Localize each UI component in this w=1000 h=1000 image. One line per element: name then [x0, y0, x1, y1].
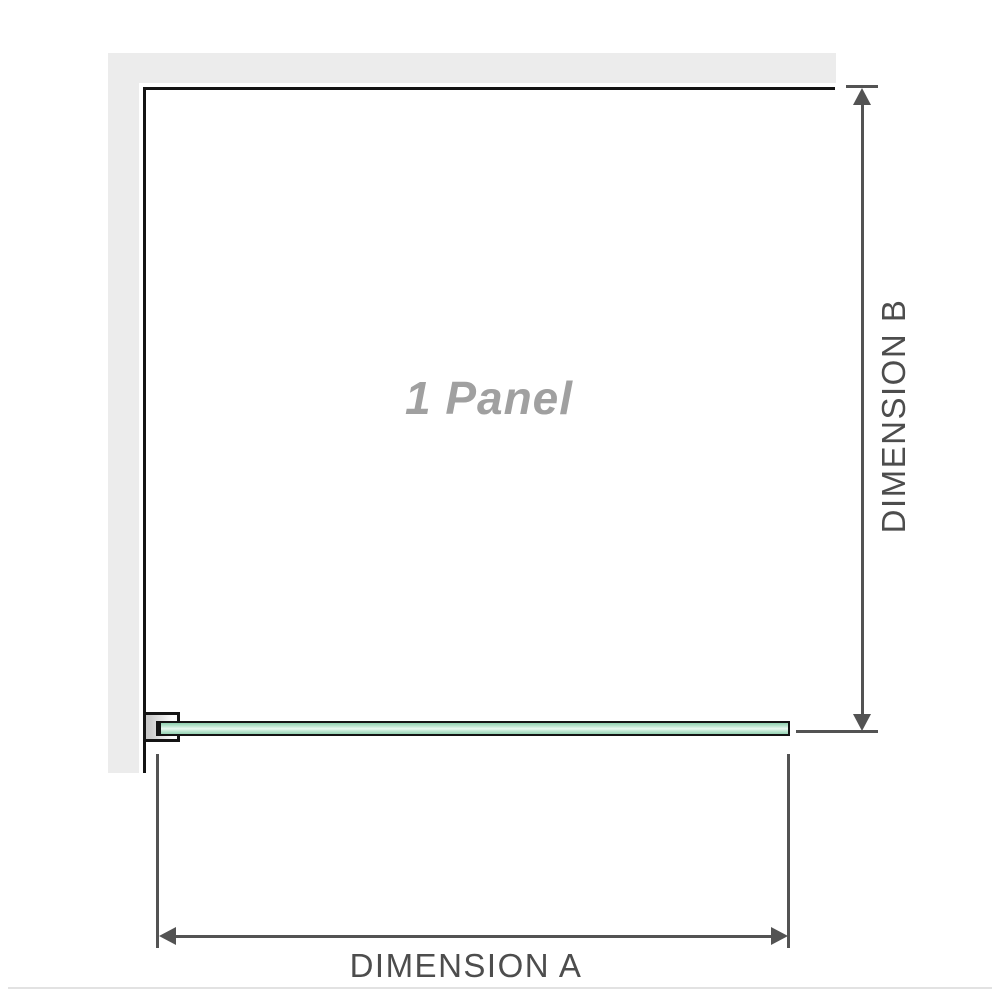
wall-top-edge-line: [143, 87, 835, 90]
dimension-b-arrowhead-up-icon: [853, 88, 871, 105]
dimension-a-arrowhead-right-icon: [771, 927, 788, 945]
wall-top: [108, 53, 836, 83]
dimension-a-label: DIMENSION A: [316, 946, 616, 986]
dimension-b-label: DIMENSION B: [874, 266, 914, 566]
dimension-a-arrowhead-left-icon: [159, 927, 176, 945]
wall-left-edge-line: [143, 87, 146, 773]
image-bottom-border: [8, 987, 992, 989]
dimension-a-line: [172, 935, 774, 938]
dimension-b-line: [861, 99, 864, 719]
glass-panel-bar: [156, 721, 790, 736]
dimension-a-extension-line-left: [156, 754, 159, 948]
panel-count-label: 1 Panel: [339, 370, 639, 426]
dimension-a-extension-line-right: [787, 754, 790, 948]
diagram-canvas: 1 Panel DIMENSION B DIMENSION A: [0, 0, 1000, 1000]
dimension-b-arrowhead-down-icon: [853, 714, 871, 731]
wall-left: [108, 53, 139, 773]
